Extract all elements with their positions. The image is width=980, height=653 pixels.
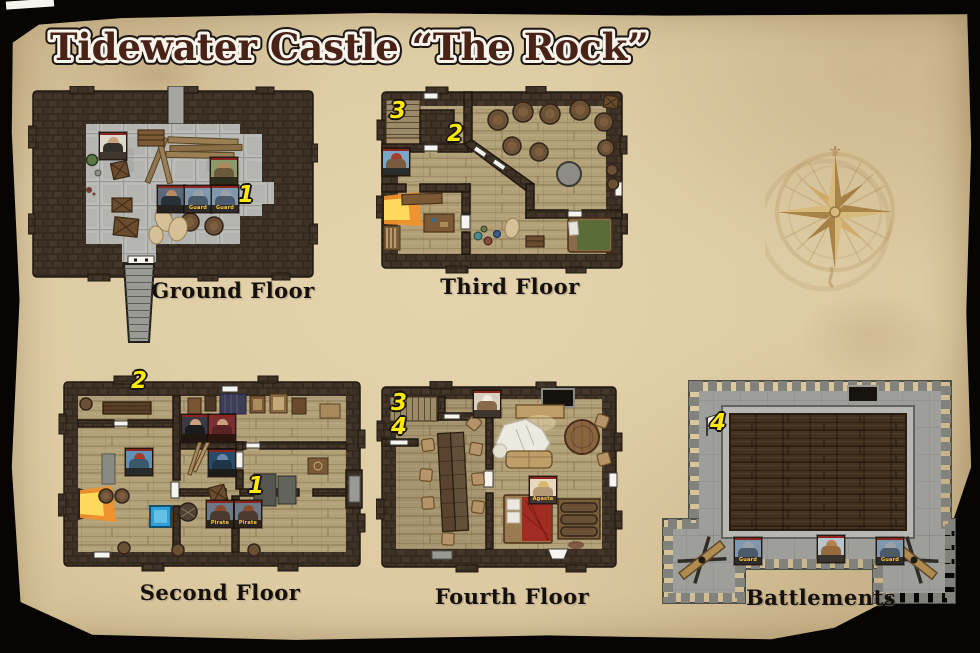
token-agasta: Agasta: [529, 476, 557, 504]
compass-rose: ⚜: [765, 145, 915, 295]
third-table: [402, 193, 442, 204]
fourth-long-table: [438, 432, 469, 531]
token-blue-skinned-man: [208, 449, 236, 477]
badge-second-2: 2: [131, 370, 147, 393]
token-battlements-guard-1: Guard: [734, 537, 762, 565]
label-battlements: Battlements: [746, 585, 896, 610]
parchment-handout: Tidewater Castle “The Rock” Tidewater Ca…: [0, 0, 980, 653]
token-red-haired-woman-sea: [125, 448, 153, 476]
token-guard-2: Guard: [211, 185, 239, 213]
title-text: Tidewater Castle “The Rock”: [50, 25, 649, 69]
label-ground-floor: Ground Floor: [151, 278, 315, 303]
ground-entry-door: [128, 256, 154, 264]
badge-third-3: 3: [390, 100, 406, 123]
fourth-floor-map: [376, 381, 628, 579]
token-pirate-1: Pirate: [206, 500, 234, 528]
fourth-floor-stain: [568, 541, 584, 549]
third-bed: [568, 218, 612, 252]
token-turbaned-cook: [473, 390, 501, 418]
second-water-basin: [150, 506, 171, 527]
ground-exterior-stairs: [124, 264, 154, 342]
token-red-haired-woman: [382, 148, 410, 176]
battlements-trapdoor: [848, 386, 878, 402]
token-robed-man: [99, 132, 127, 160]
token-pirate-2: Pirate: [234, 500, 262, 528]
badge-fourth-4: 4: [391, 416, 407, 439]
second-right-alcove: [346, 470, 362, 508]
fourth-barrel-rack: [558, 499, 600, 539]
label-fourth-floor: Fourth Floor: [435, 584, 589, 609]
token-noble: [157, 185, 185, 213]
third-floor-map: [376, 86, 628, 296]
third-desk: [424, 214, 454, 232]
badge-second-1: 1: [248, 475, 264, 498]
battlements-map: [660, 374, 958, 606]
page-title: Tidewater Castle “The Rock” Tidewater Ca…: [36, 16, 716, 78]
ground-shelf: [138, 130, 164, 146]
badge-ground-1: 1: [238, 184, 254, 207]
fourth-sofa: [506, 451, 552, 468]
ground-chimney: [168, 86, 184, 124]
token-red-hatted-woman: [208, 414, 236, 442]
fourth-wall-panel: [542, 389, 574, 407]
token-battlements-guard-2: Guard: [876, 537, 904, 565]
label-second-floor: Second Floor: [140, 580, 301, 605]
token-dark-haired-woman: [181, 414, 209, 442]
second-bench: [102, 454, 115, 484]
third-bookshelf: [384, 226, 400, 250]
label-third-floor: Third Floor: [440, 274, 579, 299]
page-corner-sliver: [6, 0, 54, 10]
token-beastman: [210, 157, 238, 185]
token-strongman: [817, 535, 845, 563]
token-guard-1: Guard: [184, 185, 212, 213]
fleur-de-lis-icon: ⚜: [828, 145, 842, 161]
badge-third-2: 2: [447, 123, 463, 146]
badge-battlements-4: 4: [710, 412, 726, 435]
badge-fourth-3: 3: [391, 392, 407, 415]
battlements-tower-roof: [722, 406, 914, 538]
ground-floor-map: [28, 86, 318, 346]
